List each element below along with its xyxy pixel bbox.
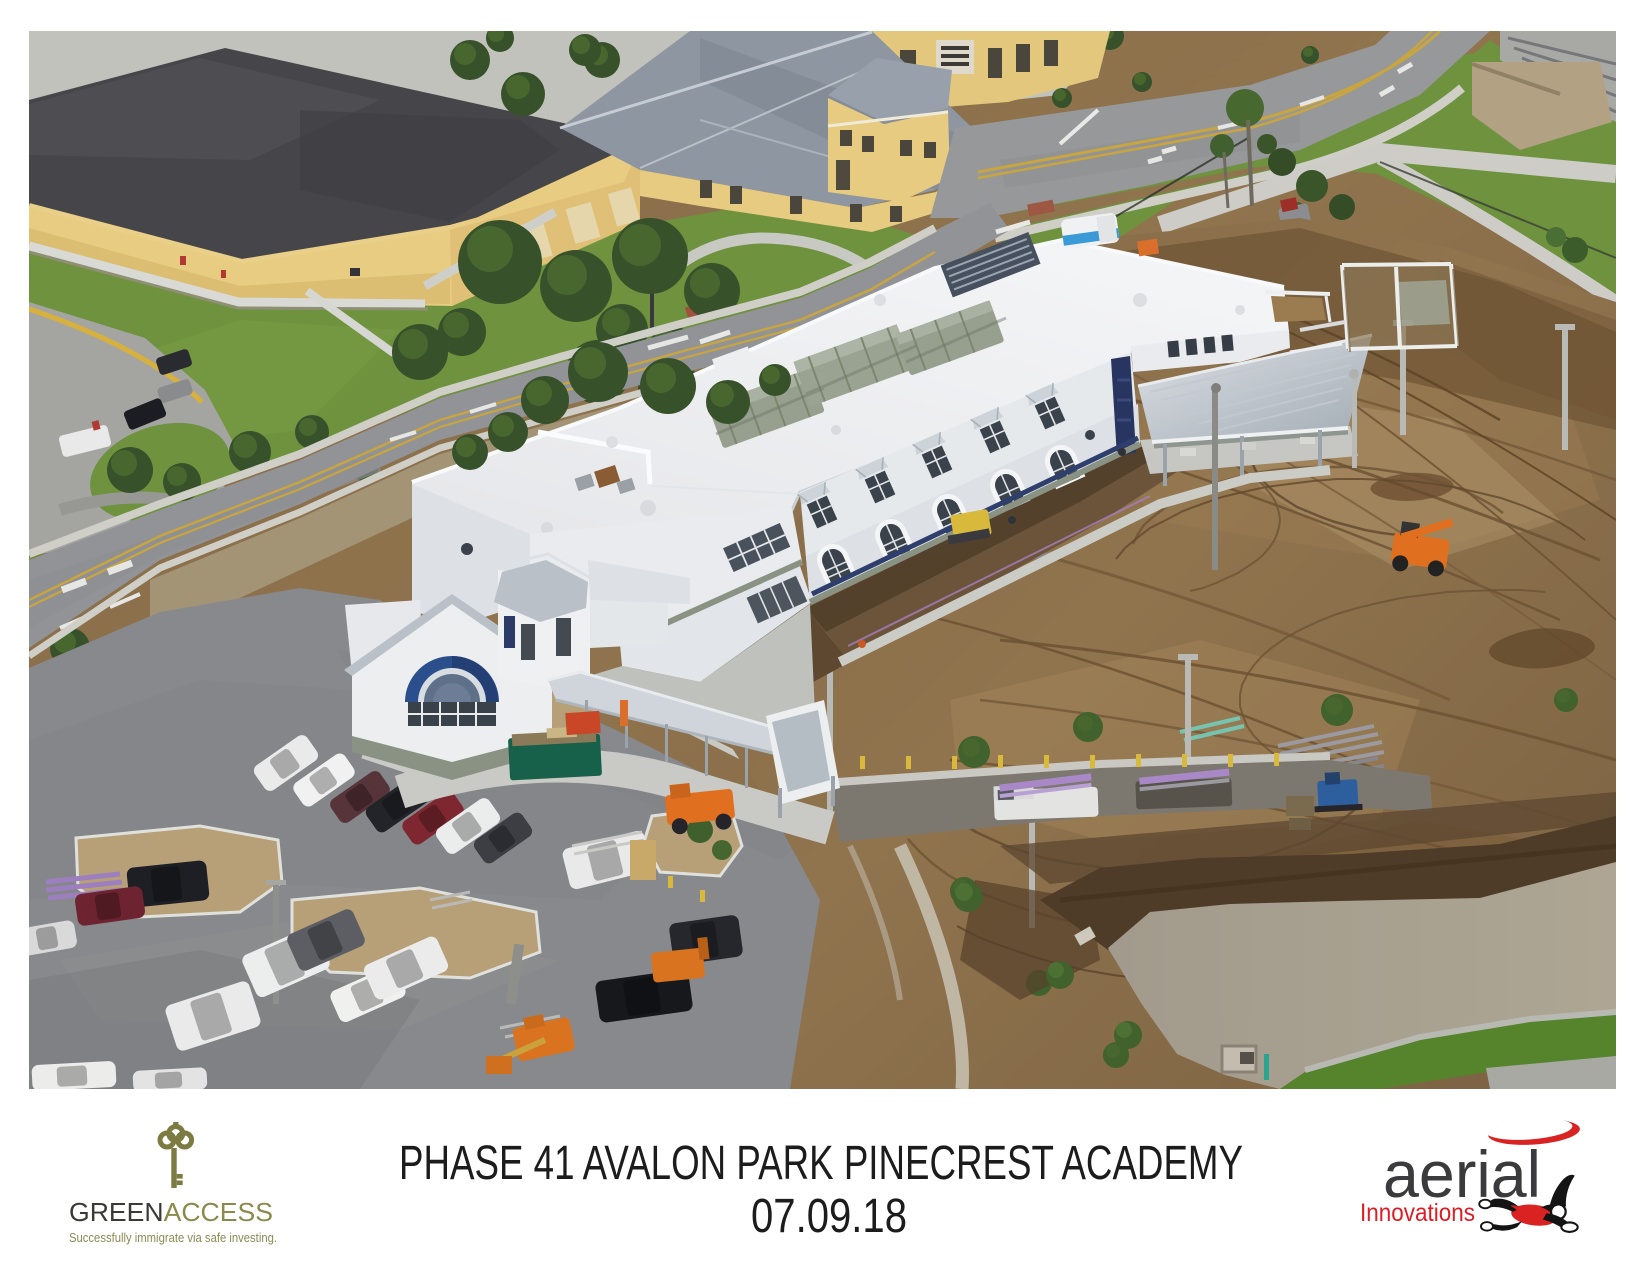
svg-text:Innovations: Innovations	[1360, 1199, 1475, 1227]
svg-text:GREENACCESS: GREENACCESS	[69, 1197, 273, 1227]
svg-text:PHASE 41 AVALON PARK PINECREST: PHASE 41 AVALON PARK PINECREST ACADEMY	[399, 1137, 1243, 1190]
svg-text:07.09.18: 07.09.18	[751, 1190, 907, 1243]
svg-text:Successfully immigrate via saf: Successfully immigrate via safe investin…	[69, 1231, 277, 1245]
